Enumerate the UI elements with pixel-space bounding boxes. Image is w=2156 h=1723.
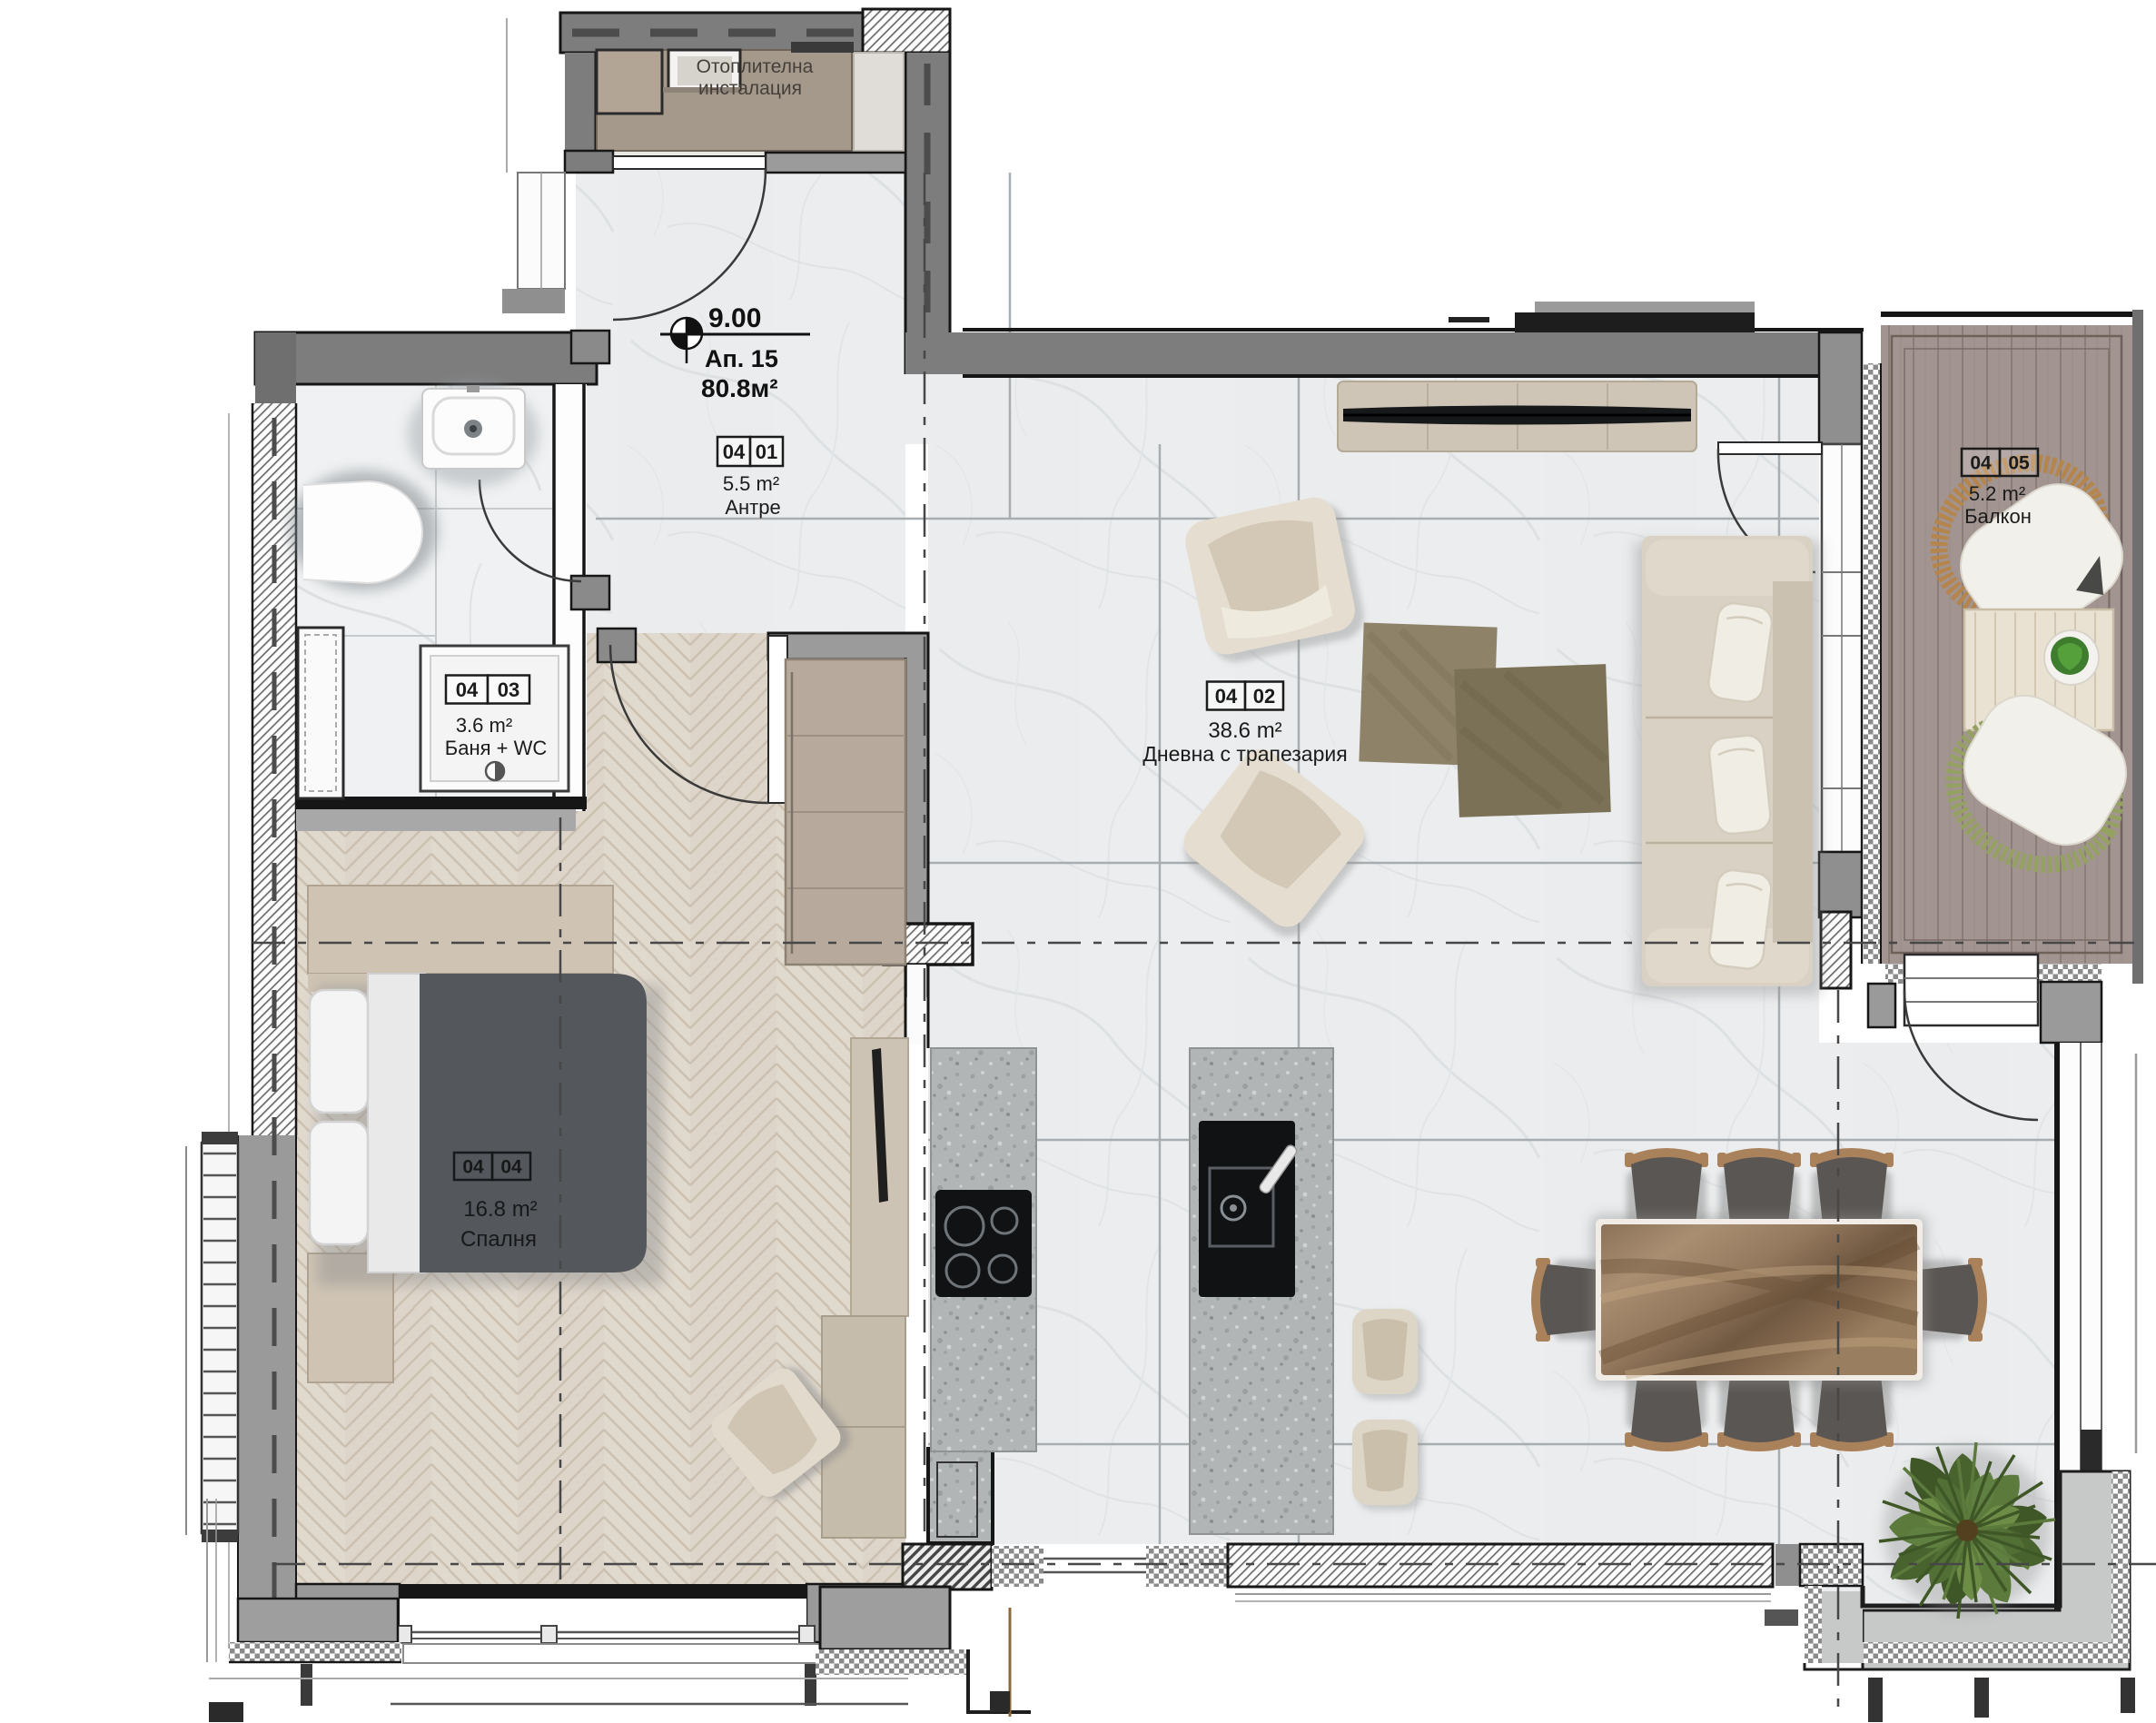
svg-text:5.2 m²: 5.2 m² <box>1969 482 2025 505</box>
svg-text:Баня + WC: Баня + WC <box>445 737 548 759</box>
svg-text:03: 03 <box>498 678 519 701</box>
svg-text:Ап. 15: Ап. 15 <box>705 345 778 372</box>
svg-text:Отоплителна: Отоплителна <box>697 56 814 77</box>
svg-text:05: 05 <box>2008 453 2030 474</box>
svg-text:04: 04 <box>456 678 479 701</box>
svg-text:3.6 m²: 3.6 m² <box>456 714 512 737</box>
svg-text:04: 04 <box>1970 453 1992 474</box>
svg-text:04: 04 <box>723 441 746 463</box>
svg-text:инсталация: инсталация <box>698 78 802 99</box>
svg-text:04: 04 <box>500 1157 522 1178</box>
svg-text:5.5 m²: 5.5 m² <box>723 472 779 495</box>
svg-text:01: 01 <box>756 441 777 463</box>
svg-text:Дневна с трапезария: Дневна с трапезария <box>1142 742 1347 766</box>
svg-text:02: 02 <box>1253 685 1275 708</box>
svg-text:9.00: 9.00 <box>708 303 761 333</box>
svg-text:16.8 m²: 16.8 m² <box>463 1197 537 1222</box>
svg-text:04: 04 <box>462 1157 484 1178</box>
svg-text:Спалня: Спалня <box>460 1227 537 1252</box>
svg-text:04: 04 <box>1215 685 1238 708</box>
svg-text:Антре: Антре <box>725 496 780 519</box>
svg-text:80.8м²: 80.8м² <box>701 374 778 402</box>
svg-text:38.6 m²: 38.6 m² <box>1208 718 1281 743</box>
svg-text:Балкон: Балкон <box>1964 505 2032 528</box>
